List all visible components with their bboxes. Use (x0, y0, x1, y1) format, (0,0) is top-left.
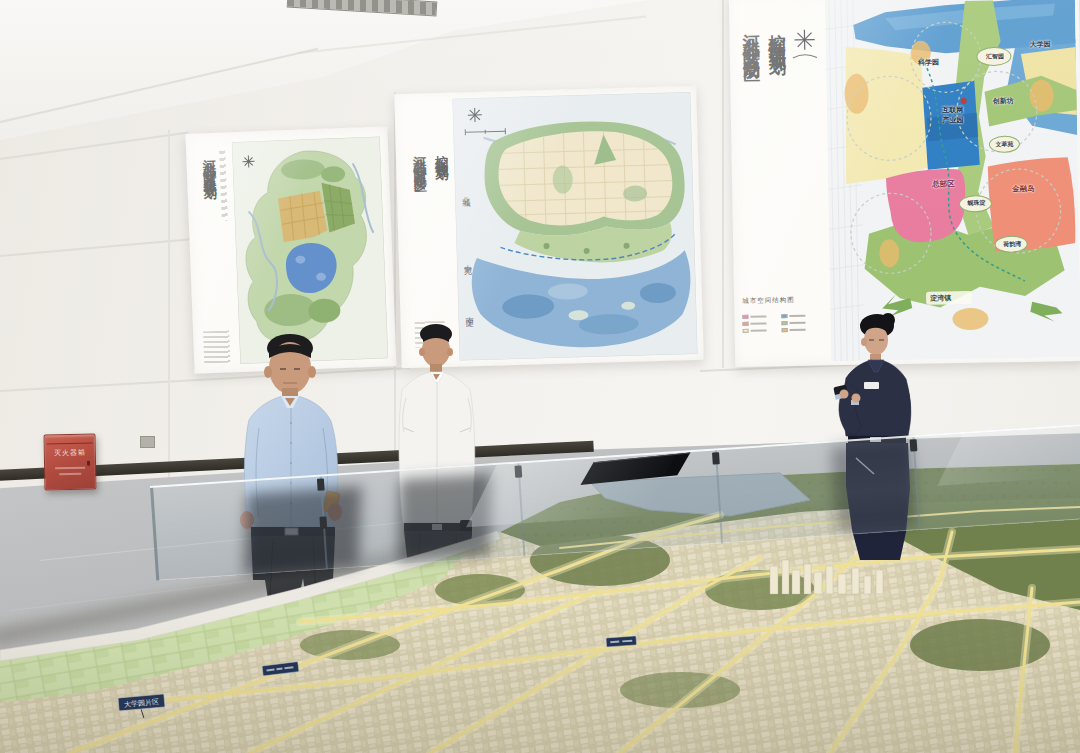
map-label-south-lake: 南淀 (462, 310, 473, 314)
zone-label-dianwan-town: 淀湾镇 (930, 293, 951, 303)
map-label-middle-garden: 中苑 (461, 258, 472, 262)
glass-glare (937, 426, 1080, 486)
poster-title-main: 控制性规划 (432, 145, 450, 160)
hand (852, 394, 861, 403)
zone-label-innovation-block: 创新坊 (993, 96, 1014, 106)
map-legend (742, 314, 814, 333)
zone-label-headquarters: 总部区 (932, 179, 955, 189)
zone-label-university-park: 大学园 (1030, 39, 1051, 49)
poster-title-sub: 河北雄安新区启动区 (739, 21, 763, 57)
wall-panel-seam (722, 0, 724, 368)
qibu-area-map (452, 92, 697, 361)
glass-reflection (244, 486, 362, 574)
glass-clamp (319, 516, 327, 528)
compass-rose-icon (789, 26, 820, 67)
map-caption: 城市空间结构图 (742, 296, 795, 306)
wall-panel-seam (168, 130, 170, 478)
zone-label-internet-park-line2: 产业园 (931, 115, 975, 126)
fine-print (219, 150, 228, 220)
zone-label-finance-island: 金融岛 (1012, 184, 1035, 194)
glass-glare (466, 453, 676, 527)
glass-clamp (317, 478, 325, 490)
zone-label-heyun-bay: 荷韵湾 (993, 240, 1031, 250)
zone-label-xianzhu-lake: 蚬珠淀 (958, 198, 994, 208)
hand (840, 390, 849, 399)
map-label-north-city: 北城 (459, 190, 470, 194)
glass-clamp (910, 439, 918, 451)
glass-clamp (712, 452, 720, 464)
zone-label-huizhi-park: 汇智园 (978, 52, 1012, 62)
zone-label-wencui-park: 文萃苑 (987, 140, 1021, 150)
poster-title-main: 控制性详细规划 (765, 20, 788, 48)
poster-title-sub: 河北雄安新区起步区 (410, 145, 429, 172)
glass-reflection (831, 441, 916, 531)
exhibition-hall-photo: 灭火器箱 河北雄安新区总体规划 (0, 0, 1080, 753)
zone-label-science-park: 科学园 (918, 57, 939, 67)
name-badge (864, 382, 879, 389)
